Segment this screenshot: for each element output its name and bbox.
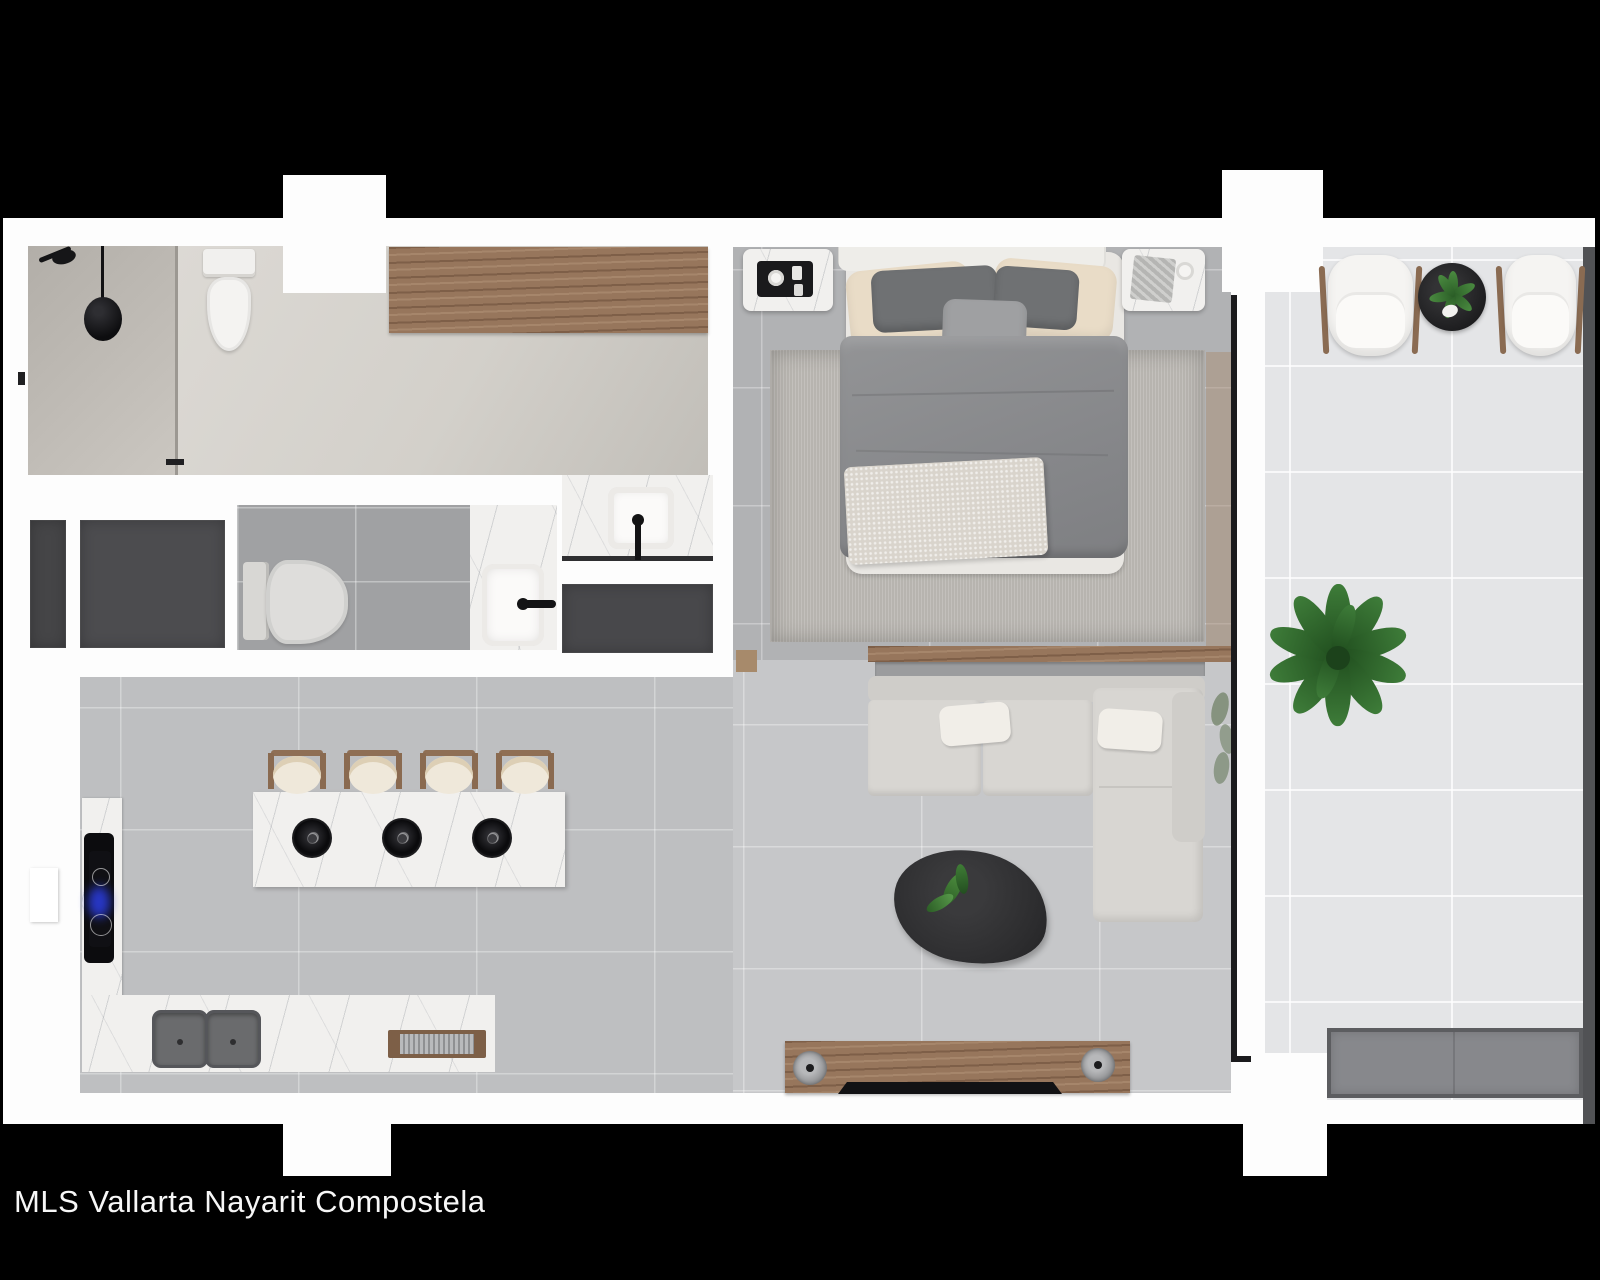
closet-mat (80, 520, 225, 648)
island-round-sink (292, 818, 332, 858)
wall-tab-bottom-right (1243, 1053, 1327, 1176)
balcony-armchair-cushion (1512, 292, 1569, 348)
cooktop-burner-ring (90, 914, 112, 936)
nightstand-bottle (794, 284, 803, 296)
ceiling-shower-head-icon (84, 297, 122, 341)
nightstand-cup (768, 270, 784, 286)
powder-faucet-icon (635, 522, 641, 560)
nightstand-book (1130, 255, 1176, 303)
side-table-plant (1424, 269, 1480, 325)
balcony-bench (1327, 1028, 1583, 1098)
island-round-sink (472, 818, 512, 858)
speaker (1081, 1048, 1115, 1082)
door-handle-tick (166, 459, 184, 465)
bedroom-door-threshold (736, 650, 757, 672)
island-round-sink (382, 818, 422, 858)
powder-faucet-icon (632, 514, 644, 526)
bar-stool (548, 753, 554, 789)
window-ledge-wood (1206, 352, 1232, 650)
bar-stool (320, 753, 326, 789)
door-handle-tick (18, 372, 25, 385)
bar-stool-seat (349, 756, 397, 794)
kitchen-sink-left (152, 1010, 208, 1068)
balcony-outer-edge (1583, 247, 1595, 1124)
sofa-pillow (938, 701, 1011, 747)
kitchen-sink-right (205, 1010, 261, 1068)
balcony-potted-plant (1262, 580, 1414, 736)
wall-tab-bottom-left (283, 1124, 391, 1176)
media-bench-shelf (875, 662, 1205, 676)
bar-stool-seat (425, 756, 473, 794)
media-bench-wood (868, 646, 1237, 662)
cooktop-burner-ring (92, 868, 110, 886)
sofa-armrest (1172, 692, 1205, 842)
cabinet-door-tab (30, 868, 58, 922)
bar-stool (472, 753, 478, 789)
window-glass-line-foot (1231, 1056, 1251, 1062)
vanity-faucet-icon (517, 598, 529, 610)
bath-mat (562, 584, 713, 653)
sofa-pillow (1097, 708, 1164, 752)
floor-plan-rendering: MLS Vallarta Nayarit Compostela (0, 0, 1600, 1280)
wood-shelf (389, 247, 708, 333)
closet-mat-narrow (30, 520, 66, 648)
dish-tray-ribs (400, 1034, 474, 1054)
wall-tab-top-left (283, 175, 386, 293)
wall-tab-top-right (1222, 170, 1323, 292)
bar-stool (396, 753, 402, 789)
bar-stool-seat (501, 756, 549, 794)
balcony-armchair-cushion (1336, 292, 1405, 348)
nightstand-bottle (792, 266, 802, 280)
nightstand-tray (757, 261, 813, 297)
window-glass-line (1231, 295, 1237, 1062)
toilet-tank (203, 249, 255, 277)
bed-throw-blanket (844, 457, 1049, 565)
plant-core (1326, 646, 1350, 670)
balcony-bench-seam (1453, 1032, 1455, 1094)
pendant-stem (101, 246, 104, 302)
nightstand-mug (1176, 262, 1194, 280)
speaker (793, 1051, 827, 1085)
caption-text: MLS Vallarta Nayarit Compostela (14, 1184, 486, 1220)
tv-screen (838, 1082, 1062, 1094)
bar-stool-seat (273, 756, 321, 794)
